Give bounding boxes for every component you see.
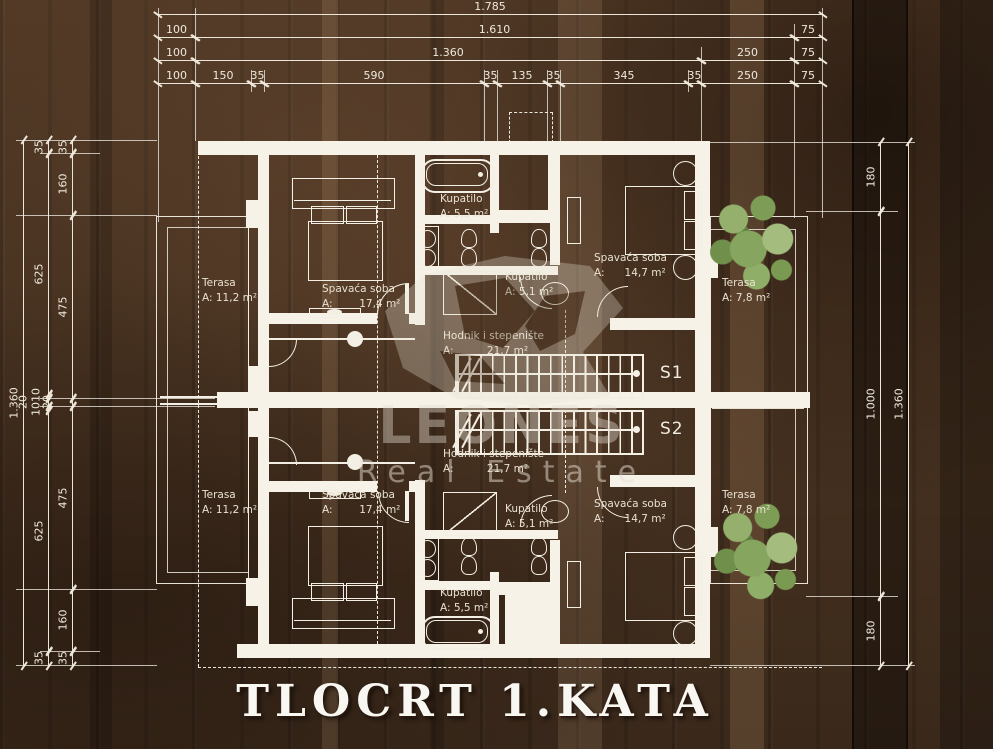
dimension-segment: 475 <box>72 406 73 589</box>
background-texture <box>940 0 993 749</box>
wardrobe-shelf-line <box>294 200 391 201</box>
door-arc <box>269 437 297 465</box>
dimension-segment: 100 <box>158 37 195 38</box>
toilet <box>461 537 477 556</box>
pillow <box>684 191 699 220</box>
extension-line <box>40 651 100 652</box>
watermark-brand: LEONES <box>352 396 652 456</box>
extension-line <box>547 70 548 141</box>
wardrobe <box>292 598 395 629</box>
drawing-title: TLOCRT 1.KATA <box>215 676 735 727</box>
extension-line <box>264 70 265 92</box>
wardrobe <box>292 178 395 209</box>
toilet <box>461 556 477 575</box>
watermark-tagline: Real Estate <box>322 455 682 490</box>
dimension-segment: 1.785 <box>158 14 822 15</box>
dimension-segment: 160 <box>72 589 73 651</box>
nightstand <box>673 621 698 646</box>
dimension-segment: 180 <box>880 142 881 211</box>
stair-label-s2: S2 <box>660 419 684 439</box>
room-label: Spavaća sobaA: 17,4 m² <box>322 488 400 518</box>
extension-line <box>497 70 498 141</box>
extension-line <box>16 215 157 216</box>
window <box>567 197 581 244</box>
nightstand <box>673 161 698 186</box>
dimension-segment: 100 <box>158 83 195 84</box>
column <box>347 331 363 347</box>
leones-lion-logo-icon <box>385 256 625 406</box>
dimension-segment: 135 <box>497 83 547 84</box>
extension-line <box>710 142 915 143</box>
extension-line <box>195 8 196 141</box>
dimension-segment: 345 <box>560 83 688 84</box>
toilet <box>531 229 547 248</box>
sink-basin <box>419 559 436 577</box>
room-label: TerasaA: 11,2 m² <box>202 276 257 306</box>
dimension-segment: 75 <box>794 60 822 61</box>
pillow <box>684 587 699 616</box>
dashed-line <box>198 667 822 668</box>
floor-plan-canvas: S1 S2 <box>0 0 993 749</box>
extension-line <box>484 70 485 141</box>
dimension-segment: 1.610 <box>195 37 794 38</box>
bathtub-drain <box>478 172 483 177</box>
extension-line <box>560 70 561 141</box>
wall <box>499 210 555 223</box>
background-texture <box>90 0 112 749</box>
extension-line <box>16 140 157 141</box>
window <box>248 411 268 437</box>
window <box>246 200 260 228</box>
window <box>246 578 260 606</box>
dimension-segment: 625 <box>48 410 49 651</box>
extension-line <box>40 153 100 154</box>
dimension-segment: 1.360 <box>195 60 701 61</box>
nightstand <box>673 255 698 280</box>
background-texture <box>322 0 338 749</box>
dimension-segment: 180 <box>880 596 881 665</box>
nightstand <box>673 525 698 550</box>
extension-line <box>701 47 702 141</box>
door-leaf <box>405 491 409 521</box>
door-arc <box>269 339 297 367</box>
room-label: TerasaA: 7,8 m² <box>722 276 770 306</box>
extension-line <box>806 596 898 597</box>
room-label: TerasaA: 7,8 m² <box>722 488 770 518</box>
room-label: KupatiloA: 5,5 m² <box>440 192 488 222</box>
toilet <box>531 556 547 575</box>
extension-line <box>822 8 823 218</box>
dimension-segment: 75 <box>794 83 822 84</box>
extension-line <box>710 665 915 666</box>
dimension-segment: 475 <box>72 215 73 398</box>
toilet <box>531 537 547 556</box>
extension-line <box>688 70 689 92</box>
room-label: Spavaća sobaA: 14,7 m² <box>594 497 667 527</box>
room-label: KupatiloA: 5,5 m² <box>440 586 488 616</box>
extension-line <box>158 8 159 222</box>
wardrobe-shelf-line <box>294 620 391 621</box>
stair-label-s1: S1 <box>660 363 684 383</box>
wall <box>550 155 560 265</box>
bathtub-drain <box>478 629 483 634</box>
dimension-segment: 100 <box>158 60 195 61</box>
stair-walk-dot <box>633 370 640 377</box>
pillow <box>684 221 699 250</box>
dimension-segment: 75 <box>794 37 822 38</box>
window <box>248 366 268 392</box>
toilet <box>461 229 477 248</box>
extension-line <box>40 406 215 407</box>
room-label: KupatiloA: 5,1 m² <box>505 502 553 532</box>
dimension-segment: 1.000 <box>880 211 881 596</box>
bed <box>308 221 383 281</box>
wall <box>198 141 710 155</box>
dimension-segment: 590 <box>264 83 484 84</box>
extension-line <box>16 589 157 590</box>
sink-basin <box>419 540 436 558</box>
sink-basin <box>419 230 436 248</box>
extension-line <box>16 665 157 666</box>
shower <box>443 492 497 536</box>
dimension-segment: 250 <box>701 60 794 61</box>
extension-line <box>251 70 252 92</box>
dimension-segment: 160 <box>72 153 73 215</box>
extension-line <box>40 398 215 399</box>
dimension-segment: 625 <box>48 153 49 394</box>
room-label: TerasaA: 11,2 m² <box>202 488 257 518</box>
dimension-segment: 1.360 <box>908 142 909 665</box>
pillow <box>684 557 699 586</box>
window <box>567 561 581 608</box>
extension-line <box>794 24 795 218</box>
dimension-segment: 35 <box>72 651 73 665</box>
dimension-segment: 150 <box>195 83 251 84</box>
dimension-segment: 250 <box>701 83 794 84</box>
bed <box>308 526 383 586</box>
duct-shaft <box>505 585 553 655</box>
dimension-segment: 35 <box>48 651 49 665</box>
wall-line <box>160 403 217 405</box>
extension-line <box>806 211 898 212</box>
